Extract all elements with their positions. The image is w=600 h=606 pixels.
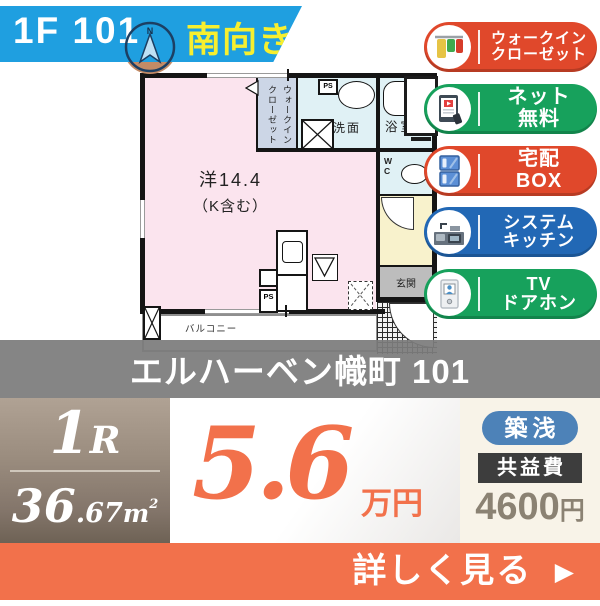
window-top	[207, 73, 287, 78]
badge-label: キッチン	[487, 232, 591, 250]
arrow-right-icon: ▶	[555, 558, 574, 586]
details-button-label: 詳しく見る	[352, 552, 532, 590]
x-mark-icon	[145, 308, 159, 338]
listing-card[interactable]: PS PS 洋14.4 （K含む） ウォークインクローゼット	[0, 0, 600, 600]
feature-badge-walk-in-closet: ウォークイン クローゼット	[424, 22, 597, 72]
common-fee-value: 4600円	[460, 486, 600, 529]
badge-label: ウォークイン	[487, 31, 591, 47]
kitchen-sink	[282, 241, 303, 263]
balcony-drain-box	[143, 306, 161, 340]
badge-label: BOX	[487, 171, 591, 193]
tv-stand	[411, 137, 431, 141]
kitchen-counter	[276, 230, 308, 312]
badge-label: ドアホン	[487, 294, 591, 313]
badge-separator	[478, 215, 480, 249]
property-title: エルハーベン幟町 101	[130, 345, 470, 393]
kitchen-icon	[427, 210, 471, 254]
badge-label: 宅配	[487, 149, 591, 171]
badge-label: システム	[487, 214, 591, 232]
property-title-band: エルハーベン幟町 101	[0, 340, 600, 398]
refrigerator-space	[312, 254, 338, 281]
badges-panel: 築浅 共益費 4600円	[460, 398, 600, 543]
floor-area: 36.67m2	[0, 474, 170, 538]
doorphone-icon	[427, 272, 471, 316]
building-age-badge: 築浅	[482, 411, 578, 445]
delivery-box-icon	[427, 149, 471, 193]
wall	[140, 73, 145, 314]
badge-label: クローゼット	[487, 47, 591, 63]
balcony-label: バルコニー	[185, 321, 237, 335]
floor-unit-label: 1F 101	[13, 10, 140, 52]
layout-area-panel: 1R 36.67m2	[0, 398, 170, 543]
details-button[interactable]: 詳しく見る ▶	[0, 543, 600, 600]
wall-tick	[287, 69, 289, 81]
x-mark-icon	[303, 121, 332, 148]
wall-tick	[285, 305, 287, 317]
wall	[376, 78, 380, 302]
main-room-label: 洋14.4 （K含む）	[158, 166, 303, 216]
wall	[256, 148, 437, 152]
rent-price: 5.6	[192, 394, 349, 534]
badge-label: 無料	[487, 109, 591, 131]
price-panel: 5.6 万円	[170, 398, 460, 543]
badge-separator	[478, 30, 480, 64]
wall	[380, 194, 432, 196]
pipe-space-box-2: PS	[259, 289, 278, 313]
badge-separator	[478, 154, 480, 188]
pipe-space-box: PS	[318, 79, 338, 95]
window-left	[140, 200, 145, 238]
counter-divider	[278, 274, 306, 276]
triangle-mark-icon	[313, 255, 336, 279]
feature-badge-tv-doorphone: TV ドアホン	[424, 269, 597, 319]
badge-label: ネット	[487, 87, 591, 109]
panel-divider	[10, 470, 160, 472]
badge-separator	[478, 277, 480, 311]
x-mark-icon	[349, 282, 371, 308]
layout-type: 1R	[0, 398, 170, 468]
sink-basin	[338, 81, 375, 109]
badge-label: TV	[487, 275, 591, 294]
feature-badge-system-kitchen: システム キッチン	[424, 207, 597, 257]
washing-machine-box	[301, 119, 334, 150]
closet-icon	[427, 25, 471, 69]
rent-price-unit: 万円	[361, 478, 423, 523]
wall	[380, 265, 432, 267]
internet-icon	[427, 87, 471, 131]
common-fee-label: 共益費	[478, 453, 582, 483]
wall	[296, 78, 298, 152]
compass-icon: N	[123, 20, 177, 74]
service-space	[348, 281, 373, 310]
storage-box	[259, 269, 278, 287]
washroom-label: 洗面	[333, 119, 361, 136]
wc-label: WC	[384, 156, 395, 176]
badge-separator	[478, 92, 480, 126]
feature-badge-free-internet: ネット 無料	[424, 84, 597, 134]
feature-badge-delivery-box: 宅配 BOX	[424, 146, 597, 196]
door-marker-icon	[245, 80, 259, 96]
wic-label: ウォークインクローゼット	[260, 84, 294, 146]
